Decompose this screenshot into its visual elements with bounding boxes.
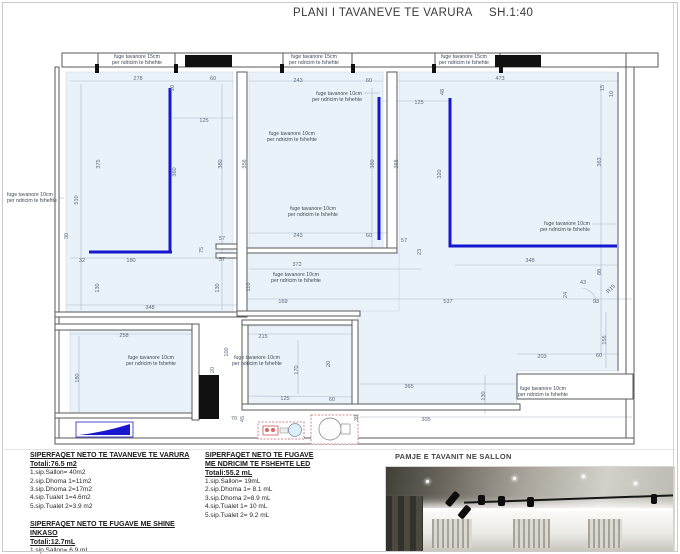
dimension-label: 375 [96,159,102,168]
fuge-annotation: per ndricim te fshehte [7,198,57,204]
top-right-extension [626,53,658,67]
dimension-label: 203 [537,354,546,360]
dimension-label: 45 [240,416,246,422]
dimension-label: 130 [481,391,487,400]
dimension-label: 39 [354,415,360,421]
dimension-label: 170 [294,365,300,374]
legend-total: Totali:12.7mL [30,538,202,547]
dimension-label: 43 [580,280,586,286]
interior-wall [237,311,360,316]
jamb-mark [280,64,284,73]
legend-item: 2.sip.Dhoma 1= 8.1 mL [205,486,377,494]
dimension-label: 57 [219,257,225,263]
fuge-annotation: per ndricim te fshehte [288,212,338,218]
dimension-label: 372 [292,262,301,268]
niche-shelf [216,244,237,249]
dimension-label: 60 [596,353,602,359]
legend-item: 1.sip.Sallon= 6.9 mL [30,547,202,554]
dimension-label: 243 [293,78,302,84]
dimension-label: 130 [215,283,221,292]
photo-curtain [588,519,623,548]
jamb-mark [351,64,355,73]
dimension-label: 320 [437,169,443,178]
fuge-annotation: fuge tavanore 10cm [290,206,336,212]
legend-heading: SIPERFAQET NETO TE FUGAVE ME SHINE INKAS… [30,520,202,538]
legend-item: 2.sip.Dhoma 1=11m2 [30,478,202,486]
dimension-label: 75 [199,247,205,253]
legend-heading-line: SIPERFAQET NETO TE FUGAVE [205,451,377,460]
jamb-mark [499,64,503,73]
dimension-label: 356 [242,159,248,168]
legend-item: 5.sip.Tualet 2= 9.2 mL [205,512,377,520]
legend-column-2: SIPERFAQET NETO TE FUGAVEME NDRICIM TE F… [205,451,377,520]
dimension-label: 48 [440,89,446,95]
dimension-label: 258 [119,333,128,339]
interior-wall [55,413,192,418]
fuge-annotation: fuge tavanore 10cm [273,272,319,278]
legend-heading-line: SIPERFAQET NETO TE FUGAVE ME SHINE INKAS… [30,520,202,538]
fuge-annotation: per ndricim te fshehte [267,137,317,143]
dimension-label: 180 [75,373,81,382]
fuge-annotation: fuge tavanore 10cm [544,221,590,227]
dimension-label: 60 [210,76,216,82]
wardrobe-black [185,55,232,67]
photo-recessed-light [634,482,637,485]
dimension-label: 60 [366,78,372,84]
dimension-label: 368 [394,159,400,168]
dimension-label: 100 [224,347,230,356]
fuge-annotation: per ndricim te fshehte [540,227,590,233]
legend-items: 1.sip.Sallon= 19mL2.sip.Dhoma 1= 8.1 mL3… [205,478,377,520]
photo-spotlight [478,495,485,505]
dimension-label: 473 [495,76,504,82]
fuge-annotation: fuge tavanore 10cm [7,192,53,198]
drawing-sheet: PLANI I TAVANEVE TE VARURA SH.1:40 [0,0,680,554]
dimension-label: 380 [218,159,224,168]
fuge-annotation: fuge tavanore 10cm [128,355,174,361]
dimension-label: 155 [602,335,608,344]
dimension-label: 278 [133,76,142,82]
interior-wall [352,320,358,410]
sallon-ceiling-photo [385,466,675,552]
legend-heading: SIPERFAQET NETO TE FUGAVEME NDRICIM TE F… [205,451,377,469]
dimension-label: 215 [258,334,267,340]
fuge-annotation: fuge tavanore 10cm [316,91,362,97]
fuge-annotation: fuge tavanore 15cm [291,54,337,60]
legend-items: 1.sip.Sallon= 6.9 mL2.sip.Dhoma 2=5.8mL [30,547,202,554]
dimension-label: 15 [600,85,606,91]
dimension-label: 60 [366,233,372,239]
dimension-label: 30 [64,233,70,239]
photo-caption: PAMJE E TAVANIT NE SALLON [395,452,512,461]
ceiling-fixture-fan [258,422,304,439]
shaft-black [199,375,219,419]
interior-wall [55,324,198,330]
photo-curtain [432,519,472,548]
dimension-label: 57 [401,238,407,244]
fuge-annotation: fuge tavanore 10cm [269,131,315,137]
legend-heading: SIPERFAQET NETO TE TAVANEVE TE VARURA [30,451,202,460]
dimension-label: 348 [145,305,154,311]
dimension-label: 537 [443,299,452,305]
photo-spotlight [651,494,657,504]
dimension-label: 169 [278,299,287,305]
page-border-inner [673,2,674,552]
photo-spotlight [527,497,534,507]
room-tualet2-ceiling [70,330,192,413]
interior-wall [237,72,247,317]
dimension-label: 10 [609,91,615,97]
interior-wall [192,324,199,420]
dimension-label: 305 [421,417,430,423]
legend-heading-line: ME NDRICIM TE FSHEHTE LED [205,460,377,469]
ceiling-fixture-light [311,415,358,444]
hall-ceiling [247,253,399,311]
fuge-annotation: per ndricim te fshehte [271,278,321,284]
legend-heading-line: SIPERFAQET NETO TE TAVANEVE TE VARURA [30,451,202,460]
dimension-label: 88 [597,269,603,275]
fuge-annotation: fuge tavanore 15cm [114,54,160,60]
jamb-mark [432,64,436,73]
dimension-label: 348 [525,258,534,264]
legend-item: 1.sip.Sallon= 19mL [205,478,377,486]
dimension-label: 93 [593,299,599,305]
photo-spotlight [498,496,505,506]
interior-wall [242,404,520,410]
fuge-annotation: per ndricim te fshehte [126,361,176,367]
dimension-label: 24 [563,292,569,298]
dimension-label: 125 [280,396,289,402]
dimension-label: 32 [79,258,85,264]
legend-total: Totali:55.2 mL [205,469,377,478]
legend-item: 3.sip.Dhoma 2=17m2 [30,486,202,494]
legend-item: 4.sip.Tualet 1=4.6m2 [30,494,202,502]
dimension-label: 130 [95,283,101,292]
dimension-label: 23 [417,249,423,255]
interior-wall [242,320,358,325]
section-divider [4,449,676,450]
interior-wall [247,248,397,253]
dimension-label: 125 [199,118,208,124]
dimension-label: 110 [246,283,252,292]
fuge-annotation: per ndricim te fshehte [112,60,162,66]
dimension-label: 243 [293,233,302,239]
fuge-annotation: per ndricim te fshehte [232,361,282,367]
fuge-annotation: per ndricim te fshehte [289,60,339,66]
legend-items: 1.sip.Sallon= 40m22.sip.Dhoma 1=11m23.si… [30,469,202,511]
legend-item: 3.sip.Dhoma 2=8.9 mL [205,495,377,503]
dimension-label: 20 [170,85,176,91]
jamb-mark [174,64,178,73]
fuge-annotation: fuge tavanore 10cm [234,355,280,361]
dimension-label: 365 [404,384,413,390]
photo-wood-panel [386,496,423,551]
jamb-mark [95,64,99,73]
dimension-label: 20 [210,367,216,373]
room-dhoma1-ceiling [66,72,233,312]
dimension-label: 125 [414,100,423,106]
legend-column-1: SIPERFAQET NETO TE TAVANEVE TE VARURA To… [30,451,202,554]
dimension-label: 57 [219,236,225,242]
interior-wall [55,312,237,317]
dimension-label: 70 [231,416,237,422]
fuge-annotation: per ndricim te fshehte [439,60,489,66]
legend-item: 5.sip.Tualet 2=3.9 m2 [30,503,202,511]
dimension-label: 363 [597,157,603,166]
fuge-annotation: per ndricim te fshehte [518,392,568,398]
fuge-annotation: fuge tavanore 15cm [441,54,487,60]
dimension-label: 180 [126,258,135,264]
dimension-label: 20 [326,361,332,367]
dimension-label: 360 [172,167,178,176]
dimension-label: 510 [74,195,80,204]
legend-item: 4.sip.Tualet 1= 10 mL [205,503,377,511]
fuge-annotation: fuge tavanore 10cm [520,386,566,392]
left-exterior-wall [55,67,59,444]
dimension-label: 380 [370,159,376,168]
photo-recessed-light [513,477,516,480]
dimension-label: 60 [329,397,335,403]
legend-item: 1.sip.Sallon= 40m2 [30,469,202,477]
legend-total: Totali:76.5 m2 [30,460,202,469]
photo-curtain [513,519,550,548]
fuge-annotation: per ndricim te fshehte [312,97,362,103]
